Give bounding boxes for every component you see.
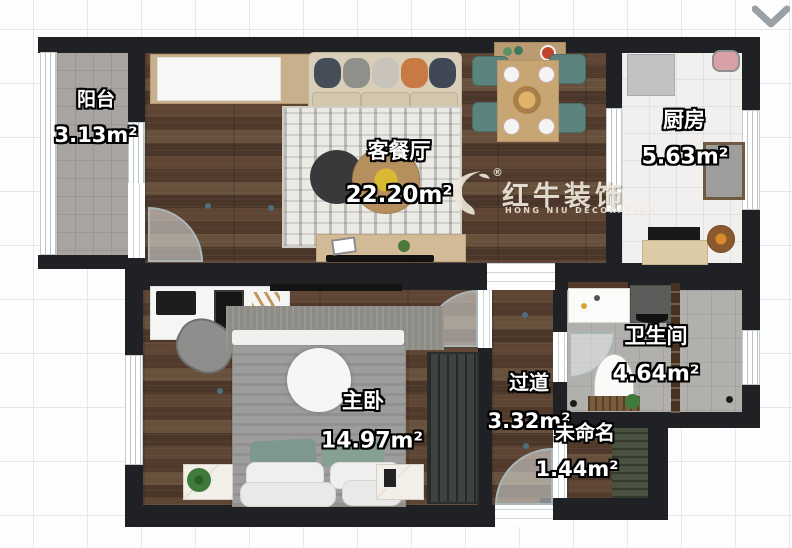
- wall-right-top: [742, 37, 760, 110]
- floor-drain-2: [726, 396, 733, 403]
- wardrobe[interactable]: [427, 352, 479, 504]
- room-balcony-floor[interactable]: [57, 52, 128, 255]
- floor-drain-1: [570, 400, 577, 407]
- tv-flatscreen: [326, 255, 434, 262]
- photo-frame: [331, 236, 357, 255]
- bedroom-tv-bar: [270, 284, 402, 291]
- sofa-pillow-4: [401, 58, 428, 88]
- wall-unnamed-right: [648, 420, 668, 505]
- green-cup-2: [514, 46, 523, 55]
- bed-bench-1: [240, 482, 336, 507]
- label-bathroom-area: 4.64m²: [613, 362, 700, 387]
- opening-bathroom-door[interactable]: [553, 332, 567, 382]
- kitchen-counter-beige: [642, 240, 708, 265]
- bed-sheet-fold: [232, 330, 404, 345]
- fruit-bowl: [707, 225, 735, 253]
- label-master-name: 主卧: [342, 385, 384, 415]
- fridge[interactable]: [627, 54, 675, 96]
- pink-stool[interactable]: [712, 50, 740, 72]
- label-kitchen-name: 厨房: [663, 104, 705, 134]
- opening-bedroom-door[interactable]: [478, 290, 492, 348]
- floorplan-canvas: 阳台 3.13m² 客餐厅 22.20m² 厨房 5.63m² 主卧 14.97…: [0, 0, 792, 548]
- light-dot-2: [268, 205, 274, 211]
- label-kitchen-area: 5.63m²: [642, 145, 729, 170]
- light-dot-1: [205, 203, 211, 209]
- green-cup-1: [503, 47, 512, 56]
- watermark-subtitle: HONG NIU DECORATION: [505, 206, 658, 215]
- wall-kitchen-divider-top: [606, 52, 622, 108]
- kitchen-counter-dark[interactable]: [648, 227, 700, 240]
- wall-bedroom-left-top: [125, 278, 143, 355]
- opening-balcony-door[interactable]: [128, 183, 145, 258]
- nightstand-art-frame: [382, 467, 398, 489]
- wall-hall-bath-bottom: [553, 382, 567, 412]
- sofa-pillow-2: [343, 58, 370, 88]
- wall-unnamed-bottom: [540, 498, 668, 520]
- light-dot-4: [217, 388, 223, 394]
- vanity-sink[interactable]: [568, 288, 630, 323]
- sofa-pillow-3: [372, 58, 399, 88]
- bath-rack-plant: [625, 394, 640, 409]
- label-balcony-name: 阳台: [77, 85, 115, 112]
- label-living-name: 客餐厅: [368, 135, 431, 165]
- soap-dot: [581, 303, 587, 309]
- wall-bedroom-bottom: [125, 505, 497, 527]
- dining-plate-4: [538, 118, 555, 135]
- plant-small: [398, 240, 410, 252]
- dining-plate-1: [503, 66, 520, 83]
- faucet-dot: [594, 295, 600, 301]
- wall-living-left: [128, 52, 145, 122]
- chevron-down-icon[interactable]: [752, 5, 790, 31]
- label-unnamed-name: 未命名: [555, 417, 615, 446]
- nightstand-plant: [187, 468, 211, 492]
- wall-kitchen-divider-bottom: [606, 212, 622, 263]
- light-dot-3: [522, 312, 528, 318]
- watermark: ® 红牛装饰 HONG NIU DECORATION: [448, 166, 628, 218]
- dining-plate-2: [538, 66, 555, 83]
- sofa-pillow-1: [314, 58, 341, 88]
- wall-right-middle: [742, 210, 760, 330]
- light-dot-5: [523, 443, 529, 449]
- label-hallway-name: 过道: [509, 367, 549, 396]
- sofa-pillow-5: [429, 58, 456, 88]
- laptop[interactable]: [156, 291, 196, 315]
- window-bedroom-left: [125, 355, 143, 465]
- opening-entry-door[interactable]: [495, 505, 553, 527]
- opening-living-to-hallway[interactable]: [487, 263, 555, 290]
- window-balcony-left: [40, 52, 57, 255]
- console-white-panel: [157, 57, 281, 101]
- wall-hall-bath-top: [553, 290, 567, 332]
- label-living-area: 22.20m²: [346, 182, 453, 208]
- dining-centerpiece: [513, 86, 541, 114]
- label-bathroom-name: 卫生间: [625, 320, 688, 350]
- label-master-area: 14.97m²: [321, 429, 423, 454]
- wall-top: [38, 37, 760, 53]
- bull-logo-icon: [448, 168, 492, 216]
- label-unnamed-area: 1.44m²: [536, 457, 619, 481]
- window-bathroom-right: [742, 330, 760, 385]
- dining-plate-3: [503, 118, 520, 135]
- label-balcony-area: 3.13m²: [55, 123, 138, 147]
